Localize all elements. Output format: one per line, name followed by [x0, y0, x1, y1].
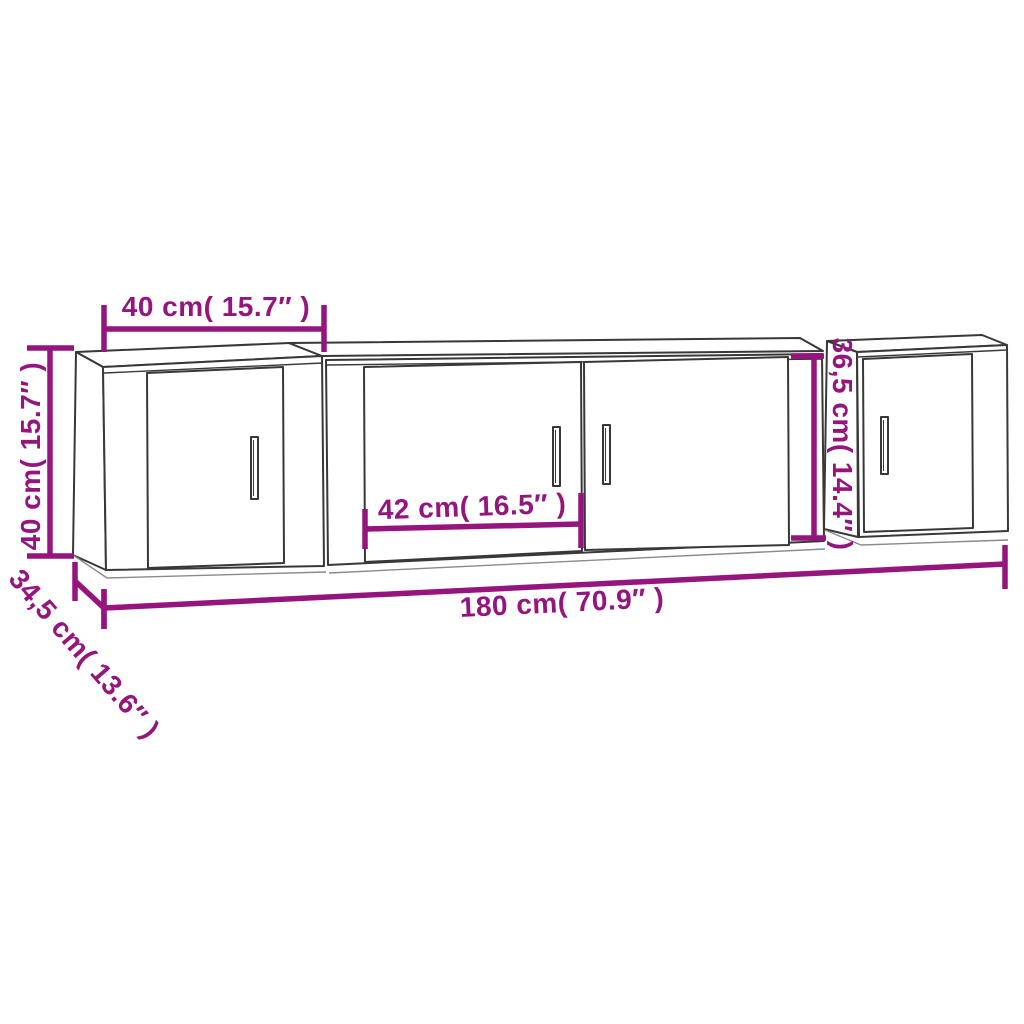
middle-cabinet-right-door-handle [603, 425, 610, 484]
dimension-label-center-cabinet-height: 36,5 cm( 14.4″ ) [828, 338, 856, 551]
middle-cabinet [289, 338, 825, 573]
middle-cabinet-right-door [584, 357, 789, 550]
middle-cabinet-left-door-handle [553, 427, 560, 486]
dimension-label-left-cabinet-height: 40 cm( 15.7″ ) [17, 362, 45, 551]
middle-cabinet-top-face [289, 338, 823, 356]
right-cabinet-base-edge [861, 540, 1008, 545]
dimension-label-left-cabinet-width: 40 cm( 15.7″ ) [122, 293, 311, 321]
left-cabinet-base-edge [107, 572, 326, 578]
dimension-diagram: 40 cm( 15.7″ ) 40 cm( 15.7″ ) 34,5 cm( 1… [0, 0, 1024, 1024]
right-cabinet-door [863, 354, 973, 532]
left-cabinet-door-handle [251, 437, 258, 499]
left-cabinet-door [147, 367, 284, 568]
right-cabinet-door-handle [881, 417, 888, 474]
middle-cabinet-left-door [364, 362, 582, 562]
left-cabinet [73, 343, 326, 578]
dim-depth-line [75, 562, 104, 629]
dimension-label-center-door-width: 42 cm( 16.5″ ) [377, 490, 566, 525]
left-cabinet-side-face [73, 352, 106, 570]
